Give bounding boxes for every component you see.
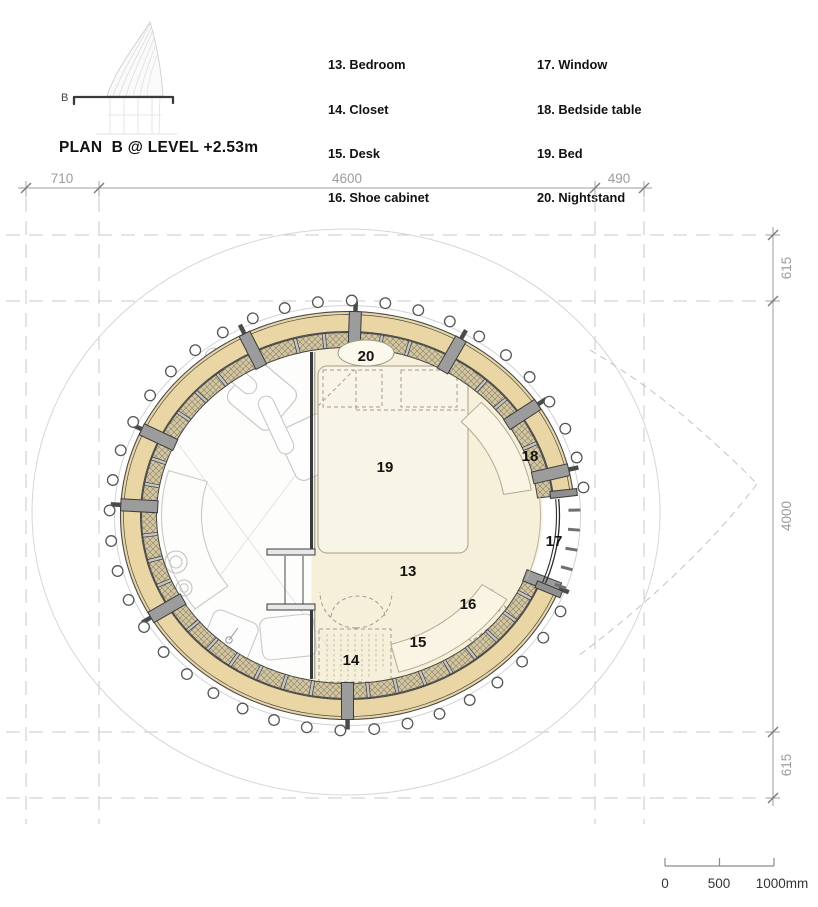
window-frame-tick	[568, 528, 580, 532]
room-label-18: 18	[522, 448, 539, 465]
room-label-15: 15	[410, 634, 427, 651]
room-label-16: 16	[460, 596, 477, 613]
dimension-right: 615 4000 615	[766, 227, 794, 806]
ladder-tread	[267, 604, 315, 610]
window-frame-tick	[568, 509, 580, 512]
perimeter-bolt	[248, 313, 259, 324]
section-marker-label: B	[61, 92, 68, 104]
perimeter-bolt	[145, 390, 156, 401]
perimeter-bolt	[112, 566, 123, 577]
perimeter-bolt	[166, 366, 177, 377]
connector-bolt	[568, 465, 579, 472]
perimeter-bolt	[524, 372, 535, 383]
scale-label-0: 0	[661, 876, 669, 891]
flange-connector	[342, 683, 354, 720]
perimeter-bolt	[474, 331, 485, 342]
perimeter-bolt	[302, 722, 313, 733]
perimeter-bolt	[555, 606, 566, 617]
perimeter-bolt	[492, 677, 503, 688]
shell-tip	[578, 350, 757, 656]
scale-label-1000: 1000mm	[756, 876, 809, 891]
room-label-13: 13	[400, 563, 417, 580]
perimeter-bolt	[123, 595, 134, 606]
window-frame-tick	[561, 565, 573, 571]
floor-plan-canvas: B 710 4600 490 615 4000 615	[0, 0, 818, 907]
dim-label-490: 490	[608, 171, 631, 186]
flange-connector	[121, 499, 159, 513]
dim-label-615-top: 615	[779, 257, 794, 280]
perimeter-bolt	[104, 505, 115, 516]
perimeter-bolt	[218, 327, 229, 338]
window-frame-tick	[565, 547, 577, 552]
perimeter-bolt	[434, 709, 445, 720]
perimeter-bolt	[380, 298, 391, 309]
perimeter-bolt	[501, 350, 512, 361]
dim-label-4000: 4000	[779, 501, 794, 531]
perimeter-bolt	[139, 622, 150, 633]
perimeter-bolt	[190, 345, 201, 356]
scale-label-500: 500	[708, 876, 731, 891]
connector-bolt	[345, 720, 350, 730]
ladder-tread	[267, 549, 315, 555]
dim-label-615-bottom: 615	[779, 754, 794, 777]
perimeter-bolt	[544, 396, 555, 407]
side-table	[259, 613, 317, 660]
perimeter-bolt	[115, 445, 126, 456]
dim-label-4600: 4600	[332, 171, 362, 186]
perimeter-bolt	[279, 303, 290, 314]
section-cut-line	[74, 97, 173, 104]
perimeter-bolt	[108, 475, 119, 486]
perimeter-bolt	[369, 724, 380, 735]
elevation-thumbnail: B	[61, 22, 177, 134]
perimeter-bolt	[413, 305, 424, 316]
dimension-top: 710 4600 490	[18, 171, 652, 197]
perimeter-bolt	[237, 703, 248, 714]
perimeter-bolt	[346, 295, 357, 306]
scale-bar: 0 500 1000mm	[661, 858, 808, 891]
room-label-20: 20	[358, 348, 375, 365]
perimeter-bolt	[128, 417, 139, 428]
perimeter-bolt	[182, 669, 193, 680]
perimeter-bolt	[158, 647, 169, 658]
perimeter-bolt	[208, 688, 219, 699]
perimeter-bolt	[517, 656, 528, 667]
perimeter-bolt	[445, 316, 456, 327]
dim-label-710: 710	[51, 171, 74, 186]
perimeter-bolt	[571, 452, 582, 463]
perimeter-bolt	[578, 482, 589, 493]
perimeter-bolt	[560, 423, 571, 434]
room-label-17: 17	[546, 533, 563, 550]
perimeter-bolt	[464, 695, 475, 706]
perimeter-bolt	[269, 715, 280, 726]
perimeter-bolt	[402, 718, 413, 729]
perimeter-bolt	[538, 632, 549, 643]
perimeter-bolt	[335, 725, 346, 736]
room-label-19: 19	[377, 459, 394, 476]
room-label-14: 14	[343, 652, 360, 669]
perimeter-bolt	[106, 536, 117, 547]
perimeter-bolt	[313, 297, 324, 308]
drawing-sheet: PLAN B @ LEVEL +2.53m 13. Bedroom 14. Cl…	[0, 0, 818, 907]
